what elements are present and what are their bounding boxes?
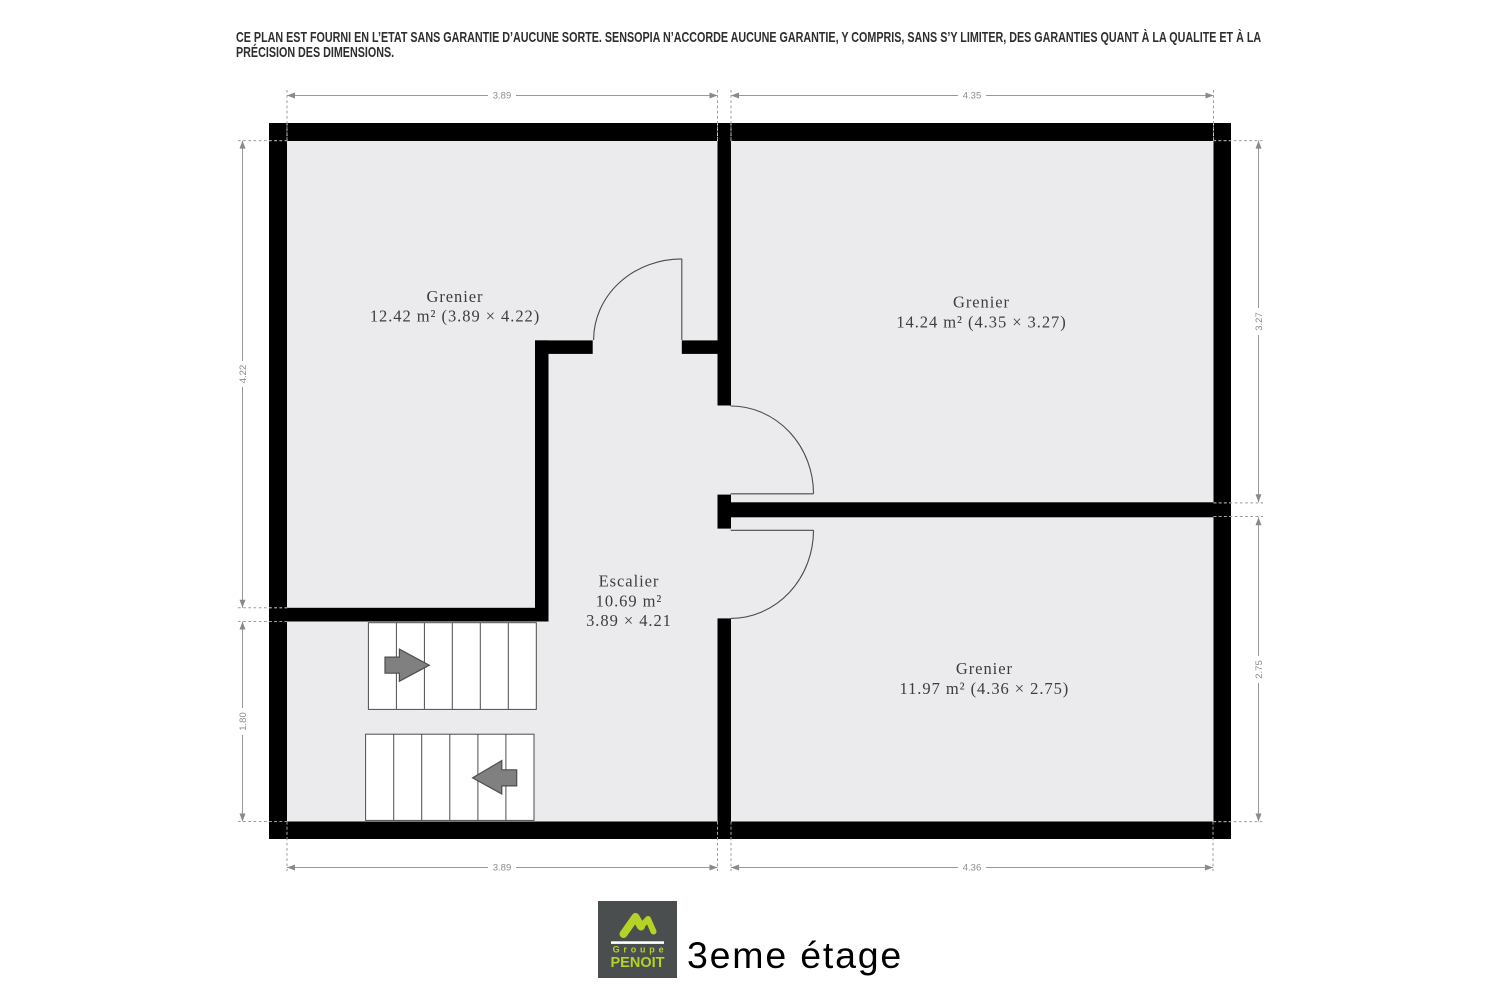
svg-text:3.27: 3.27 — [1254, 312, 1265, 331]
svg-text:11.97 m² (4.36 × 2.75): 11.97 m² (4.36 × 2.75) — [900, 679, 1070, 698]
svg-text:3.89 × 4.21: 3.89 × 4.21 — [586, 611, 672, 630]
svg-text:4.36: 4.36 — [963, 863, 982, 874]
svg-text:Grenier: Grenier — [426, 287, 483, 306]
svg-text:10.69 m²: 10.69 m² — [596, 591, 663, 610]
svg-text:Grenier: Grenier — [956, 659, 1013, 678]
svg-text:3.89: 3.89 — [493, 863, 512, 874]
svg-text:Groupe: Groupe — [613, 945, 668, 955]
svg-text:2.75: 2.75 — [1254, 660, 1265, 679]
svg-text:Grenier: Grenier — [953, 293, 1010, 312]
svg-text:4.22: 4.22 — [238, 365, 249, 384]
svg-text:1.80: 1.80 — [238, 712, 249, 731]
svg-text:4.35: 4.35 — [963, 91, 982, 102]
svg-text:3.89: 3.89 — [493, 91, 512, 102]
svg-text:PENOIT: PENOIT — [611, 955, 665, 971]
svg-text:14.24 m² (4.35 × 3.27): 14.24 m² (4.35 × 3.27) — [896, 313, 1066, 332]
svg-text:12.42 m² (3.89 × 4.22): 12.42 m² (3.89 × 4.22) — [370, 306, 540, 325]
svg-text:Escalier: Escalier — [599, 571, 660, 590]
